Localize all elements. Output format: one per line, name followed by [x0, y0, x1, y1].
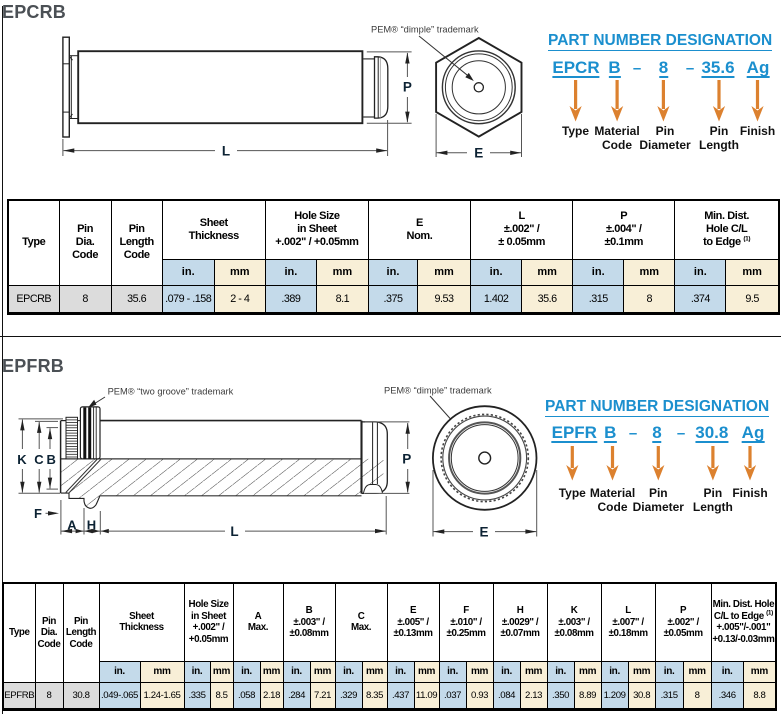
svg-text:P: P	[402, 452, 411, 467]
svg-text:A: A	[67, 518, 77, 533]
svg-text:B: B	[47, 452, 56, 467]
svg-text:E: E	[474, 146, 483, 161]
svg-text:P: P	[403, 80, 412, 95]
svg-text:L: L	[230, 524, 238, 539]
svg-text:C: C	[34, 452, 44, 467]
svg-text:F: F	[34, 506, 42, 521]
svg-text:PEM® “dimple” trademark: PEM® “dimple” trademark	[371, 25, 479, 35]
svg-text:H: H	[87, 518, 96, 533]
svg-text:L: L	[222, 144, 230, 159]
svg-text:PEM® “dimple” trademark: PEM® “dimple” trademark	[384, 386, 492, 396]
svg-text:K: K	[17, 452, 27, 467]
svg-text:PEM® “two groove” trademark: PEM® “two groove” trademark	[108, 387, 234, 397]
svg-text:E: E	[479, 525, 488, 540]
